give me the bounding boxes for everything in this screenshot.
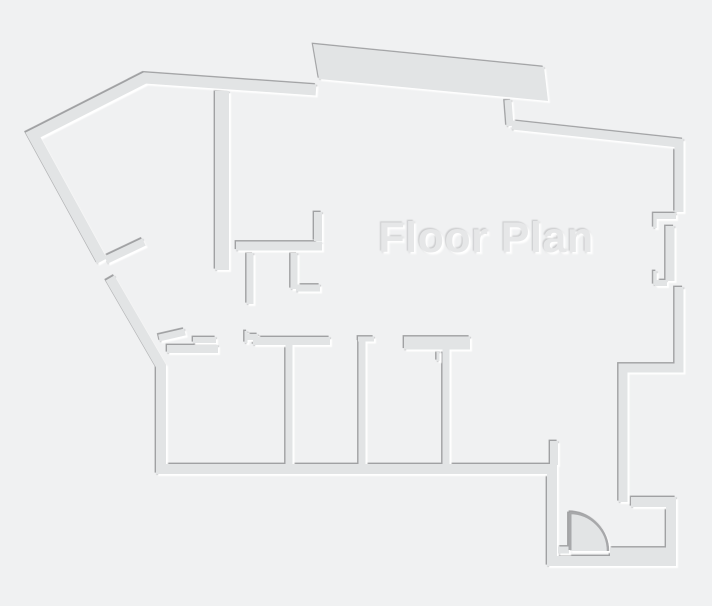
plan-title: Floor Plan	[378, 214, 593, 262]
background	[0, 0, 712, 606]
bay-connector-wall	[508, 100, 510, 126]
floor-plan-canvas: Floor Plan	[0, 0, 712, 606]
floor-plan-svg: Floor Plan	[0, 0, 712, 606]
